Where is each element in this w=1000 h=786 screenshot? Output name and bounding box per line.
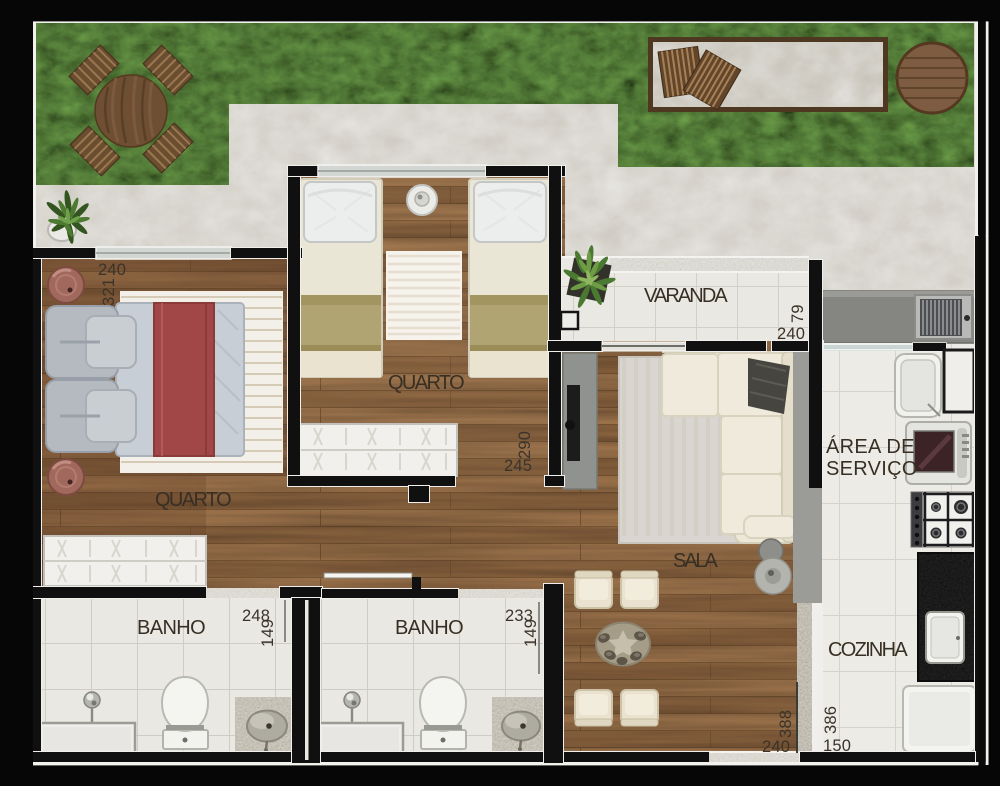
- svg-text:290: 290: [516, 431, 534, 459]
- svg-text:150: 150: [823, 737, 851, 755]
- svg-text:388: 388: [777, 710, 795, 738]
- svg-text:321: 321: [100, 278, 118, 306]
- svg-text:245: 245: [504, 457, 532, 475]
- svg-text:240: 240: [777, 325, 805, 343]
- svg-text:BANHO: BANHO: [395, 617, 464, 639]
- svg-text:BANHO: BANHO: [137, 617, 206, 639]
- svg-text:149: 149: [259, 619, 277, 647]
- svg-text:149: 149: [522, 619, 540, 647]
- svg-text:386: 386: [822, 706, 840, 734]
- svg-text:VARANDA: VARANDA: [644, 285, 728, 307]
- svg-text:240: 240: [98, 261, 126, 279]
- svg-text:240: 240: [762, 738, 790, 756]
- svg-text:ÁREA DE: ÁREA DE: [826, 435, 915, 458]
- svg-text:COZINHA: COZINHA: [828, 639, 908, 661]
- svg-text:QUARTO: QUARTO: [388, 372, 465, 394]
- svg-text:SALA: SALA: [673, 550, 718, 572]
- svg-text:QUARTO: QUARTO: [155, 489, 232, 511]
- svg-text:SERVIÇO: SERVIÇO: [826, 458, 918, 480]
- svg-text:79: 79: [789, 304, 807, 323]
